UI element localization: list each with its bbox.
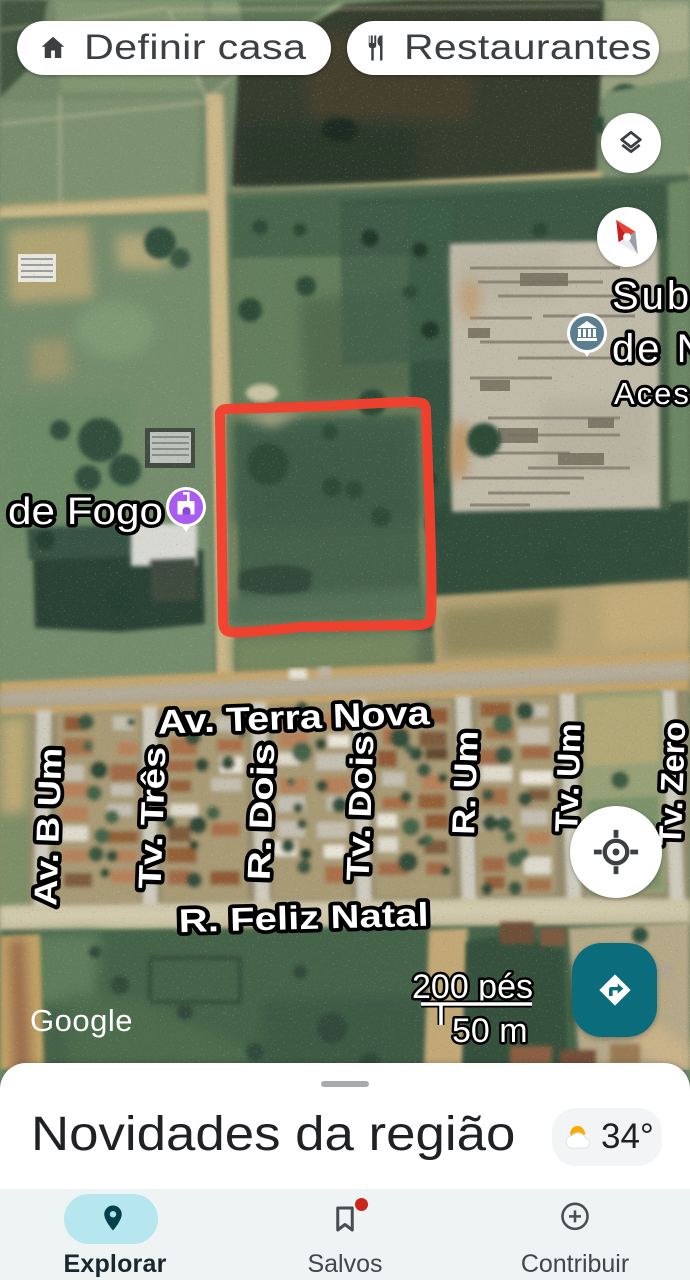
svg-text:Tv. Zero: Tv. Zero [652, 721, 690, 846]
svg-text:200 pés: 200 pés [412, 968, 533, 1006]
svg-text:R. Feliz Natal: R. Feliz Natal [178, 896, 429, 940]
svg-text:Subes: Subes [612, 274, 690, 318]
svg-text:R. Dois: R. Dois [241, 743, 282, 881]
svg-text:Google: Google [30, 1003, 133, 1038]
svg-text:50 m: 50 m [452, 1012, 528, 1050]
svg-text:Acesso: Acesso [614, 376, 690, 411]
svg-text:Tv. Um: Tv. Um [548, 723, 588, 833]
svg-text:Av. B Um: Av. B Um [27, 747, 68, 906]
svg-text:de Fogo: de Fogo [8, 491, 163, 533]
svg-text:de No: de No [612, 327, 690, 371]
svg-text:Tv. Dois: Tv. Dois [339, 734, 380, 881]
svg-text:Tv. Três: Tv. Três [132, 746, 173, 889]
svg-text:R. Um: R. Um [445, 730, 485, 835]
